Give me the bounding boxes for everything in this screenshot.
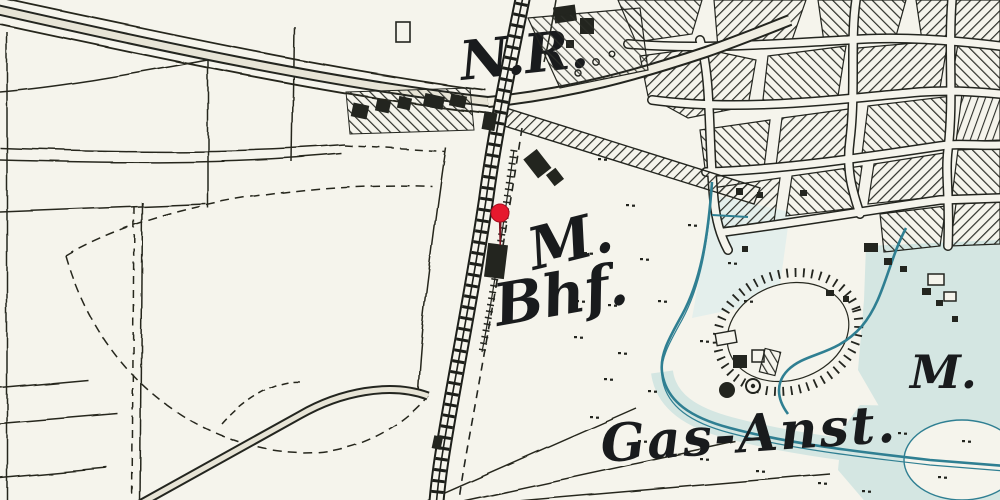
building [936, 300, 943, 306]
label-locality: M. [908, 345, 977, 399]
building [864, 243, 878, 252]
building [800, 190, 807, 196]
street-surface [947, 0, 952, 246]
building [843, 296, 849, 302]
pin-head [491, 204, 509, 222]
building [900, 266, 907, 272]
building [922, 288, 931, 295]
building [884, 258, 892, 265]
building [733, 355, 747, 368]
village-block [952, 148, 1000, 196]
gas-holder-center [751, 384, 755, 388]
building [826, 290, 834, 296]
village-block [880, 206, 946, 252]
building [952, 316, 958, 322]
building [757, 192, 763, 198]
building-outline [928, 274, 944, 285]
village-block [956, 92, 1000, 142]
building [742, 246, 748, 252]
building-outline [944, 292, 956, 301]
village-block [950, 202, 1000, 246]
map-canvas[interactable]: N.R. M. Bhf. Gas-Anst. M. [0, 0, 1000, 500]
historical-map: N.R. M. Bhf. Gas-Anst. M. [0, 0, 1000, 500]
building [736, 188, 743, 195]
building [715, 330, 737, 345]
gas-holder [719, 382, 735, 398]
building-outline [396, 22, 410, 42]
